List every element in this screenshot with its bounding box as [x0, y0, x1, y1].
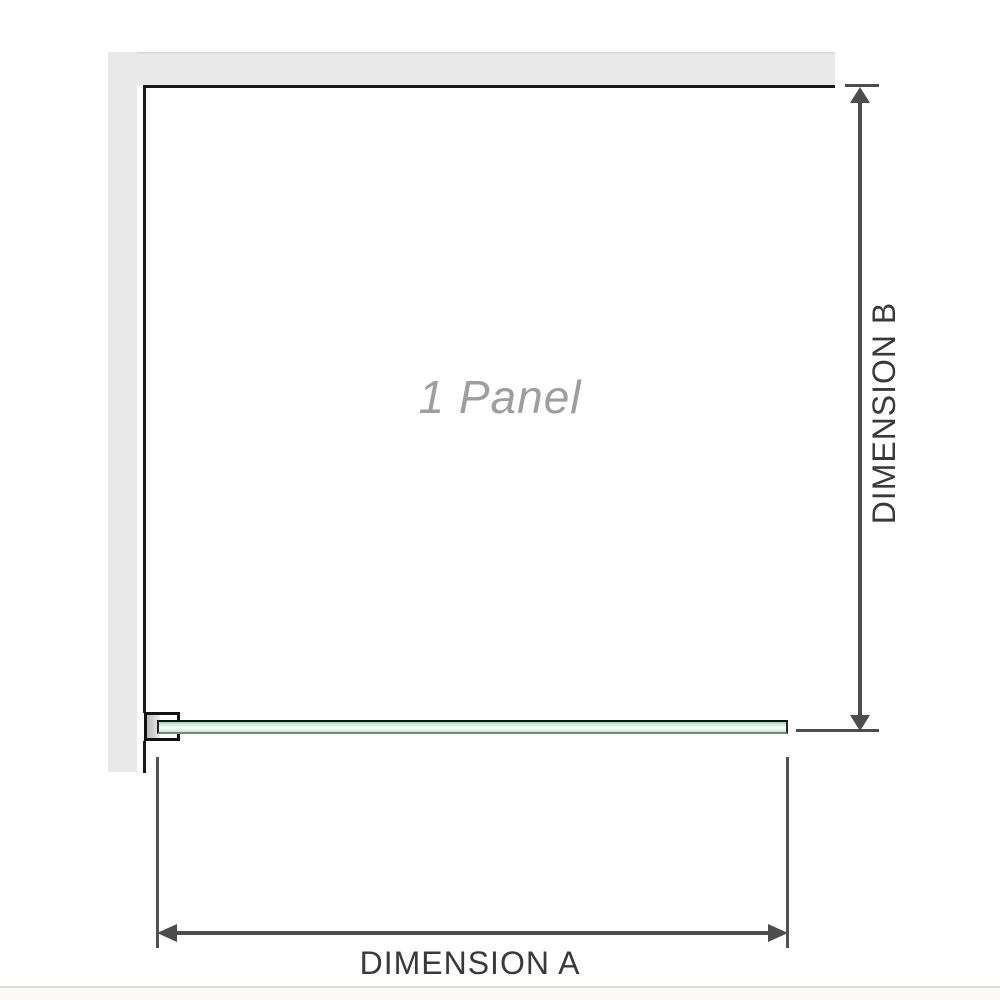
panel-outline-top	[143, 85, 835, 88]
glass-panel	[157, 720, 788, 734]
arrowhead-right-icon	[768, 924, 788, 942]
dimension-b-label: DIMENSION B	[864, 213, 904, 613]
dimension-b-line	[858, 100, 862, 716]
wall-top	[108, 52, 835, 85]
dimension-a-extension-right	[786, 757, 789, 948]
panel-outline-left	[143, 85, 146, 713]
arrowhead-up-icon	[850, 87, 870, 103]
dimension-a-label: DIMENSION A	[170, 944, 770, 982]
wall-left	[108, 52, 137, 772]
dimension-a-line	[175, 931, 770, 935]
panel-count-label: 1 Panel	[348, 368, 652, 426]
dimension-a-extension-left	[156, 757, 159, 948]
arrowhead-down-icon	[850, 715, 870, 731]
panel-outline-left-lower	[143, 741, 146, 773]
arrowhead-left-icon	[157, 924, 177, 942]
shower-panel-dimension-diagram: 1 Panel DIMENSION B DIMENSION A	[0, 0, 1000, 1000]
bottom-strip	[0, 988, 1000, 1000]
